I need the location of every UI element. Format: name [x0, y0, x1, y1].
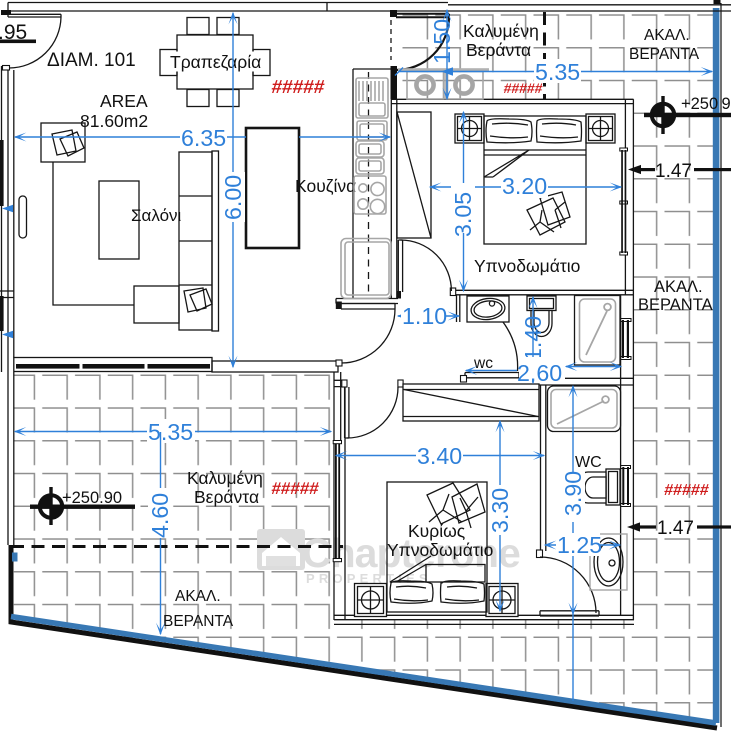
- svg-text:ΒΕΡΑΝΤΑ: ΒΕΡΑΝΤΑ: [163, 613, 234, 630]
- svg-text:3.40: 3.40: [417, 443, 462, 469]
- svg-text:ΔΙΑΜ. 101: ΔΙΑΜ. 101: [47, 50, 136, 71]
- svg-text:90: 90: [722, 95, 731, 113]
- svg-text:6.00: 6.00: [220, 175, 246, 220]
- svg-text:4.60: 4.60: [147, 493, 173, 538]
- svg-text:81.60m2: 81.60m2: [80, 111, 148, 131]
- svg-text:ΑΚΑΛ.: ΑΚΑΛ.: [644, 27, 690, 44]
- svg-text:1.50: 1.50: [429, 19, 455, 64]
- svg-text:3.30: 3.30: [487, 488, 513, 533]
- svg-text:#####: #####: [270, 77, 325, 98]
- svg-text:+250: +250: [681, 95, 718, 113]
- svg-text:Κουζίνα: Κουζίνα: [295, 176, 356, 196]
- svg-text:ΑΚΑΛ.: ΑΚΑΛ.: [654, 278, 703, 296]
- svg-text:5.35: 5.35: [148, 419, 193, 445]
- svg-text:3.20: 3.20: [502, 173, 547, 199]
- svg-text:6.35: 6.35: [181, 125, 226, 151]
- svg-text:Καλυμένη: Καλυμένη: [463, 21, 539, 41]
- svg-text:AREA: AREA: [100, 91, 148, 111]
- svg-text:Κυρίως: Κυρίως: [408, 521, 465, 541]
- svg-text:ΒΕΡΑΝΤΑ: ΒΕΡΑΝΤΑ: [629, 46, 700, 63]
- svg-text:Τραπεζαρία: Τραπεζαρία: [170, 52, 261, 72]
- svg-text:2.60: 2.60: [517, 360, 562, 386]
- svg-text:1.10: 1.10: [402, 303, 447, 329]
- svg-text:Σαλόνι: Σαλόνι: [131, 206, 182, 225]
- svg-text:1.47: 1.47: [657, 518, 694, 539]
- svg-text:Υπνοδωμάτιο: Υπνοδωμάτιο: [474, 256, 580, 276]
- svg-text:wc: wc: [473, 355, 493, 372]
- svg-text:5.35: 5.35: [535, 59, 580, 85]
- svg-text:3.05: 3.05: [450, 192, 476, 237]
- svg-text:ΑΚΑΛ.: ΑΚΑΛ.: [175, 588, 221, 605]
- svg-text:Βεράντα: Βεράντα: [466, 40, 531, 60]
- svg-text:3.90: 3.90: [560, 471, 586, 516]
- svg-text:1.47: 1.47: [655, 161, 692, 182]
- svg-text:WC: WC: [575, 454, 602, 471]
- svg-text:+250.90: +250.90: [62, 489, 122, 507]
- svg-text:ΒΕΡΑΝΤΑ: ΒΕΡΑΝΤΑ: [638, 296, 713, 314]
- svg-text:1.25: 1.25: [557, 532, 602, 558]
- svg-text:#####: #####: [663, 481, 709, 499]
- svg-text:Βεράντα: Βεράντα: [194, 487, 259, 507]
- svg-text:1.40: 1.40: [520, 316, 546, 361]
- svg-text:#####: #####: [271, 479, 321, 498]
- svg-text:Καλυμένη: Καλυμένη: [187, 468, 263, 488]
- svg-text:Υπνοδωμάτιο: Υπνοδωμάτιο: [387, 540, 493, 560]
